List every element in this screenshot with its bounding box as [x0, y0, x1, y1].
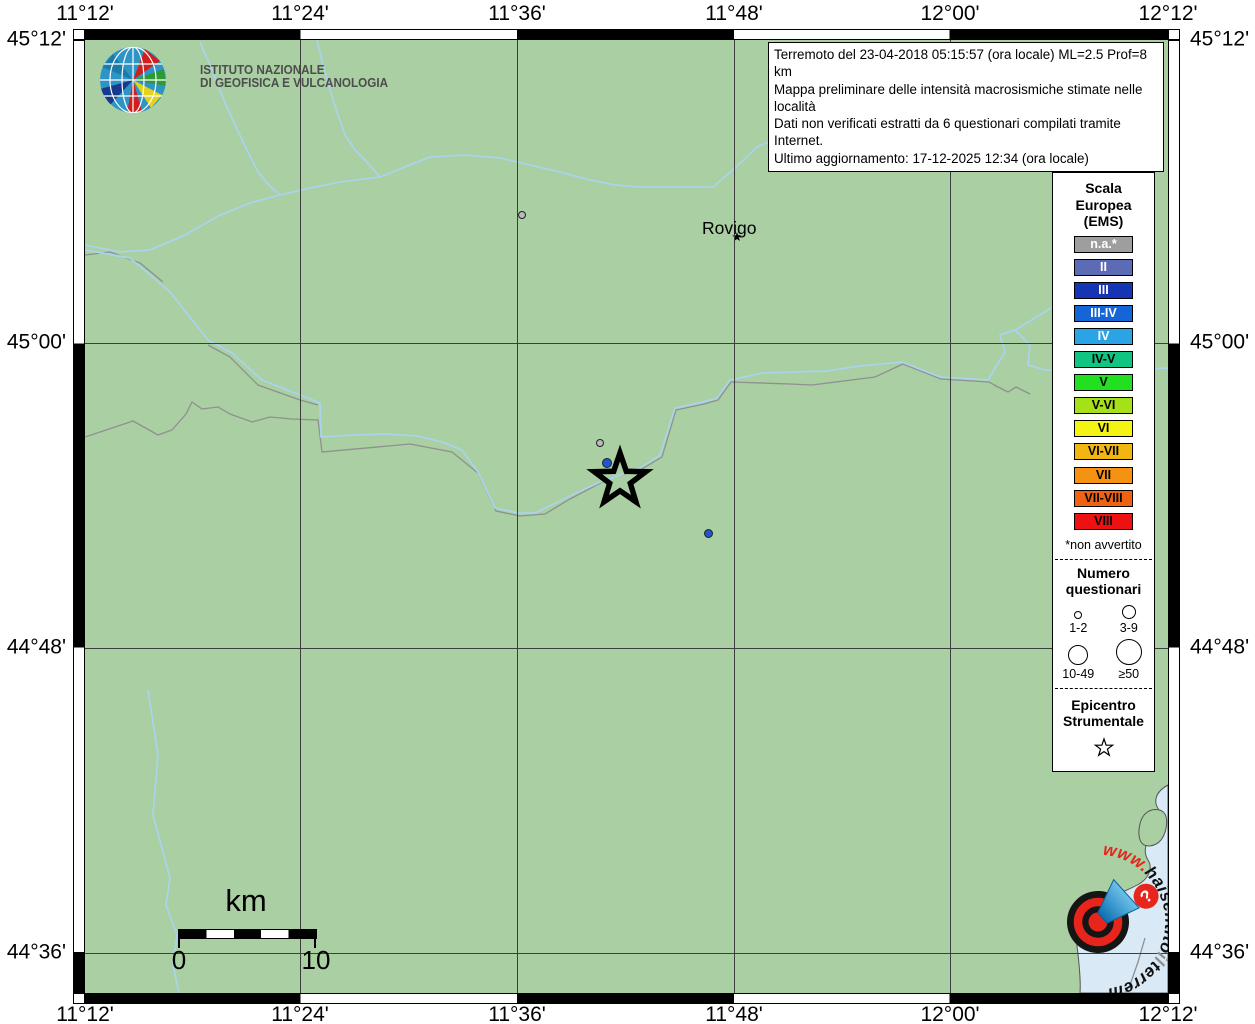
axis-label-bottom: 11°24': [271, 1003, 329, 1024]
axis-label-bottom: 12°12': [1138, 1003, 1197, 1024]
ingv-logo-line2: DI GEOFISICA E VULCANOLOGIA: [200, 77, 388, 90]
questionnaire-circle: [1068, 645, 1088, 665]
intensity-swatch-III: III: [1074, 282, 1133, 299]
axis-label-left: 44°36': [4, 941, 66, 965]
scalebar-label-end: 10: [302, 945, 331, 976]
intensity-swatch-n.a.*: n.a.*: [1074, 236, 1133, 253]
axis-label-bottom: 11°36': [488, 1003, 546, 1024]
questionnaire-circle: [1122, 605, 1136, 619]
intensity-swatch-VII: VII: [1074, 467, 1133, 484]
epicenter-key-title: Strumentale: [1053, 713, 1154, 730]
frame-corner: [73, 993, 85, 1004]
info-line-data: Dati non verificati estratti da 6 questi…: [774, 115, 1158, 150]
axis-label-left: 45°12': [4, 28, 66, 52]
axis-label-right: 44°48': [1190, 636, 1249, 660]
map-frame-right: [1168, 40, 1180, 993]
intensity-swatch-V: V: [1074, 374, 1133, 391]
axis-label-top: 11°12': [56, 2, 114, 26]
graticule-meridian: [734, 40, 735, 993]
haisentitoilterremoto-logo: www.haisentitoilterremoto.it ?: [1013, 837, 1168, 993]
legend-footnote: *non avvertito: [1053, 538, 1154, 552]
graticule-meridian: [300, 40, 301, 993]
info-line-map: Mappa preliminare delle intensità macros…: [774, 81, 1158, 116]
info-line-event: Terremoto del 23-04-2018 05:15:57 (ora l…: [774, 46, 1158, 81]
questionnaire-size: 10-49: [1053, 635, 1104, 681]
map-vector-layer: [85, 40, 1168, 993]
legend-title: Europea: [1053, 197, 1154, 214]
questionnaire-range-label: 3-9: [1120, 621, 1138, 635]
axis-label-right: 44°36': [1190, 941, 1249, 965]
graticule-parallel: [85, 953, 1168, 954]
epicenter-key-title: Epicentro: [1053, 697, 1154, 714]
scalebar-unit: km: [181, 883, 311, 919]
questionnaire-range-label: ≥50: [1118, 667, 1139, 681]
questionnaire-size: 3-9: [1104, 601, 1155, 635]
axis-label-bottom: 11°12': [56, 1003, 114, 1024]
questionnaires-title: Numero: [1053, 565, 1154, 582]
frame-corner: [1168, 993, 1180, 1004]
axis-label-top: 12°00': [920, 2, 979, 26]
intensity-swatch-IV-V: IV-V: [1074, 351, 1133, 368]
intensity-swatch-VIII: VIII: [1074, 513, 1133, 530]
city-label: Rovigo: [702, 218, 756, 239]
legend-title: Scala: [1053, 173, 1154, 197]
ingv-logo-globe: [97, 44, 169, 116]
axis-label-top: 11°36': [488, 2, 546, 26]
ingv-intensity-map-page: 11°12' 11°24' 11°36' 11°48' 12°00' 12°12…: [0, 0, 1255, 1024]
intensity-dot: [596, 439, 604, 447]
legend-panel: Scala Europea (EMS) n.a.*IIIIIIII-IVIVIV…: [1052, 172, 1155, 772]
map-frame-bottom: [85, 993, 1168, 1004]
legend-divider: [1055, 688, 1152, 689]
intensity-swatch-IV: IV: [1074, 328, 1133, 345]
axis-label-top: 11°24': [271, 2, 329, 26]
axis-label-bottom: 11°48': [705, 1003, 763, 1024]
epicenter-key-star-icon: [1090, 736, 1118, 762]
rivers: [85, 40, 1168, 993]
intensity-dot: [518, 211, 526, 219]
frame-corner: [1168, 29, 1180, 40]
intensity-scale: n.a.*IIIIIIII-IVIVIV-VVV-VIVIVI-VIIVIIVI…: [1053, 236, 1154, 530]
intensity-swatch-III-IV: III-IV: [1074, 305, 1133, 322]
graticule-parallel: [85, 343, 1168, 344]
earthquake-info-box: Terremoto del 23-04-2018 05:15:57 (ora l…: [768, 42, 1164, 172]
questionnaires-title: questionari: [1053, 581, 1154, 598]
info-line-updated: Ultimo aggiornamento: 17-12-2025 12:34 (…: [774, 150, 1158, 167]
axis-label-top: 12°12': [1138, 2, 1197, 26]
axis-label-left: 44°48': [4, 636, 66, 660]
scalebar: [178, 929, 317, 939]
graticule-meridian: [517, 40, 518, 993]
axis-label-left: 45°00': [4, 331, 66, 355]
intensity-swatch-VII-VIII: VII-VIII: [1074, 490, 1133, 507]
axis-label-right: 45°12': [1190, 28, 1249, 52]
questionnaire-circle: [1116, 639, 1142, 665]
intensity-dot: [704, 529, 713, 538]
questionnaire-range-label: 1-2: [1069, 621, 1087, 635]
scalebar-label-start: 0: [172, 945, 186, 976]
axis-label-bottom: 12°00': [920, 1003, 979, 1024]
intensity-dot: [602, 458, 612, 468]
intensity-swatch-V-VI: V-VI: [1074, 397, 1133, 414]
map-canvas: Rovigo ISTITUTO: [85, 40, 1168, 993]
map-frame-left: [73, 40, 85, 993]
axis-label-top: 11°48': [705, 2, 763, 26]
questionnaire-range-label: 10-49: [1062, 667, 1094, 681]
axis-label-right: 45°00': [1190, 331, 1249, 355]
ingv-logo-text: ISTITUTO NAZIONALE DI GEOFISICA E VULCAN…: [200, 64, 388, 89]
questionnaire-size: ≥50: [1104, 635, 1155, 681]
legend-title: (EMS): [1053, 213, 1154, 230]
questionnaire-size-key: 1-2 3-9 10-49 ≥50: [1053, 601, 1154, 681]
frame-corner: [73, 29, 85, 40]
questionnaire-circle: [1074, 611, 1082, 619]
intensity-swatch-VI: VI: [1074, 420, 1133, 437]
graticule-parallel: [85, 648, 1168, 649]
legend-divider: [1055, 559, 1152, 560]
intensity-swatch-II: II: [1074, 259, 1133, 276]
graticule-meridian: [950, 40, 951, 993]
intensity-swatch-VI-VII: VI-VII: [1074, 443, 1133, 460]
questionnaire-size: 1-2: [1053, 601, 1104, 635]
map-frame-top: [85, 29, 1168, 40]
